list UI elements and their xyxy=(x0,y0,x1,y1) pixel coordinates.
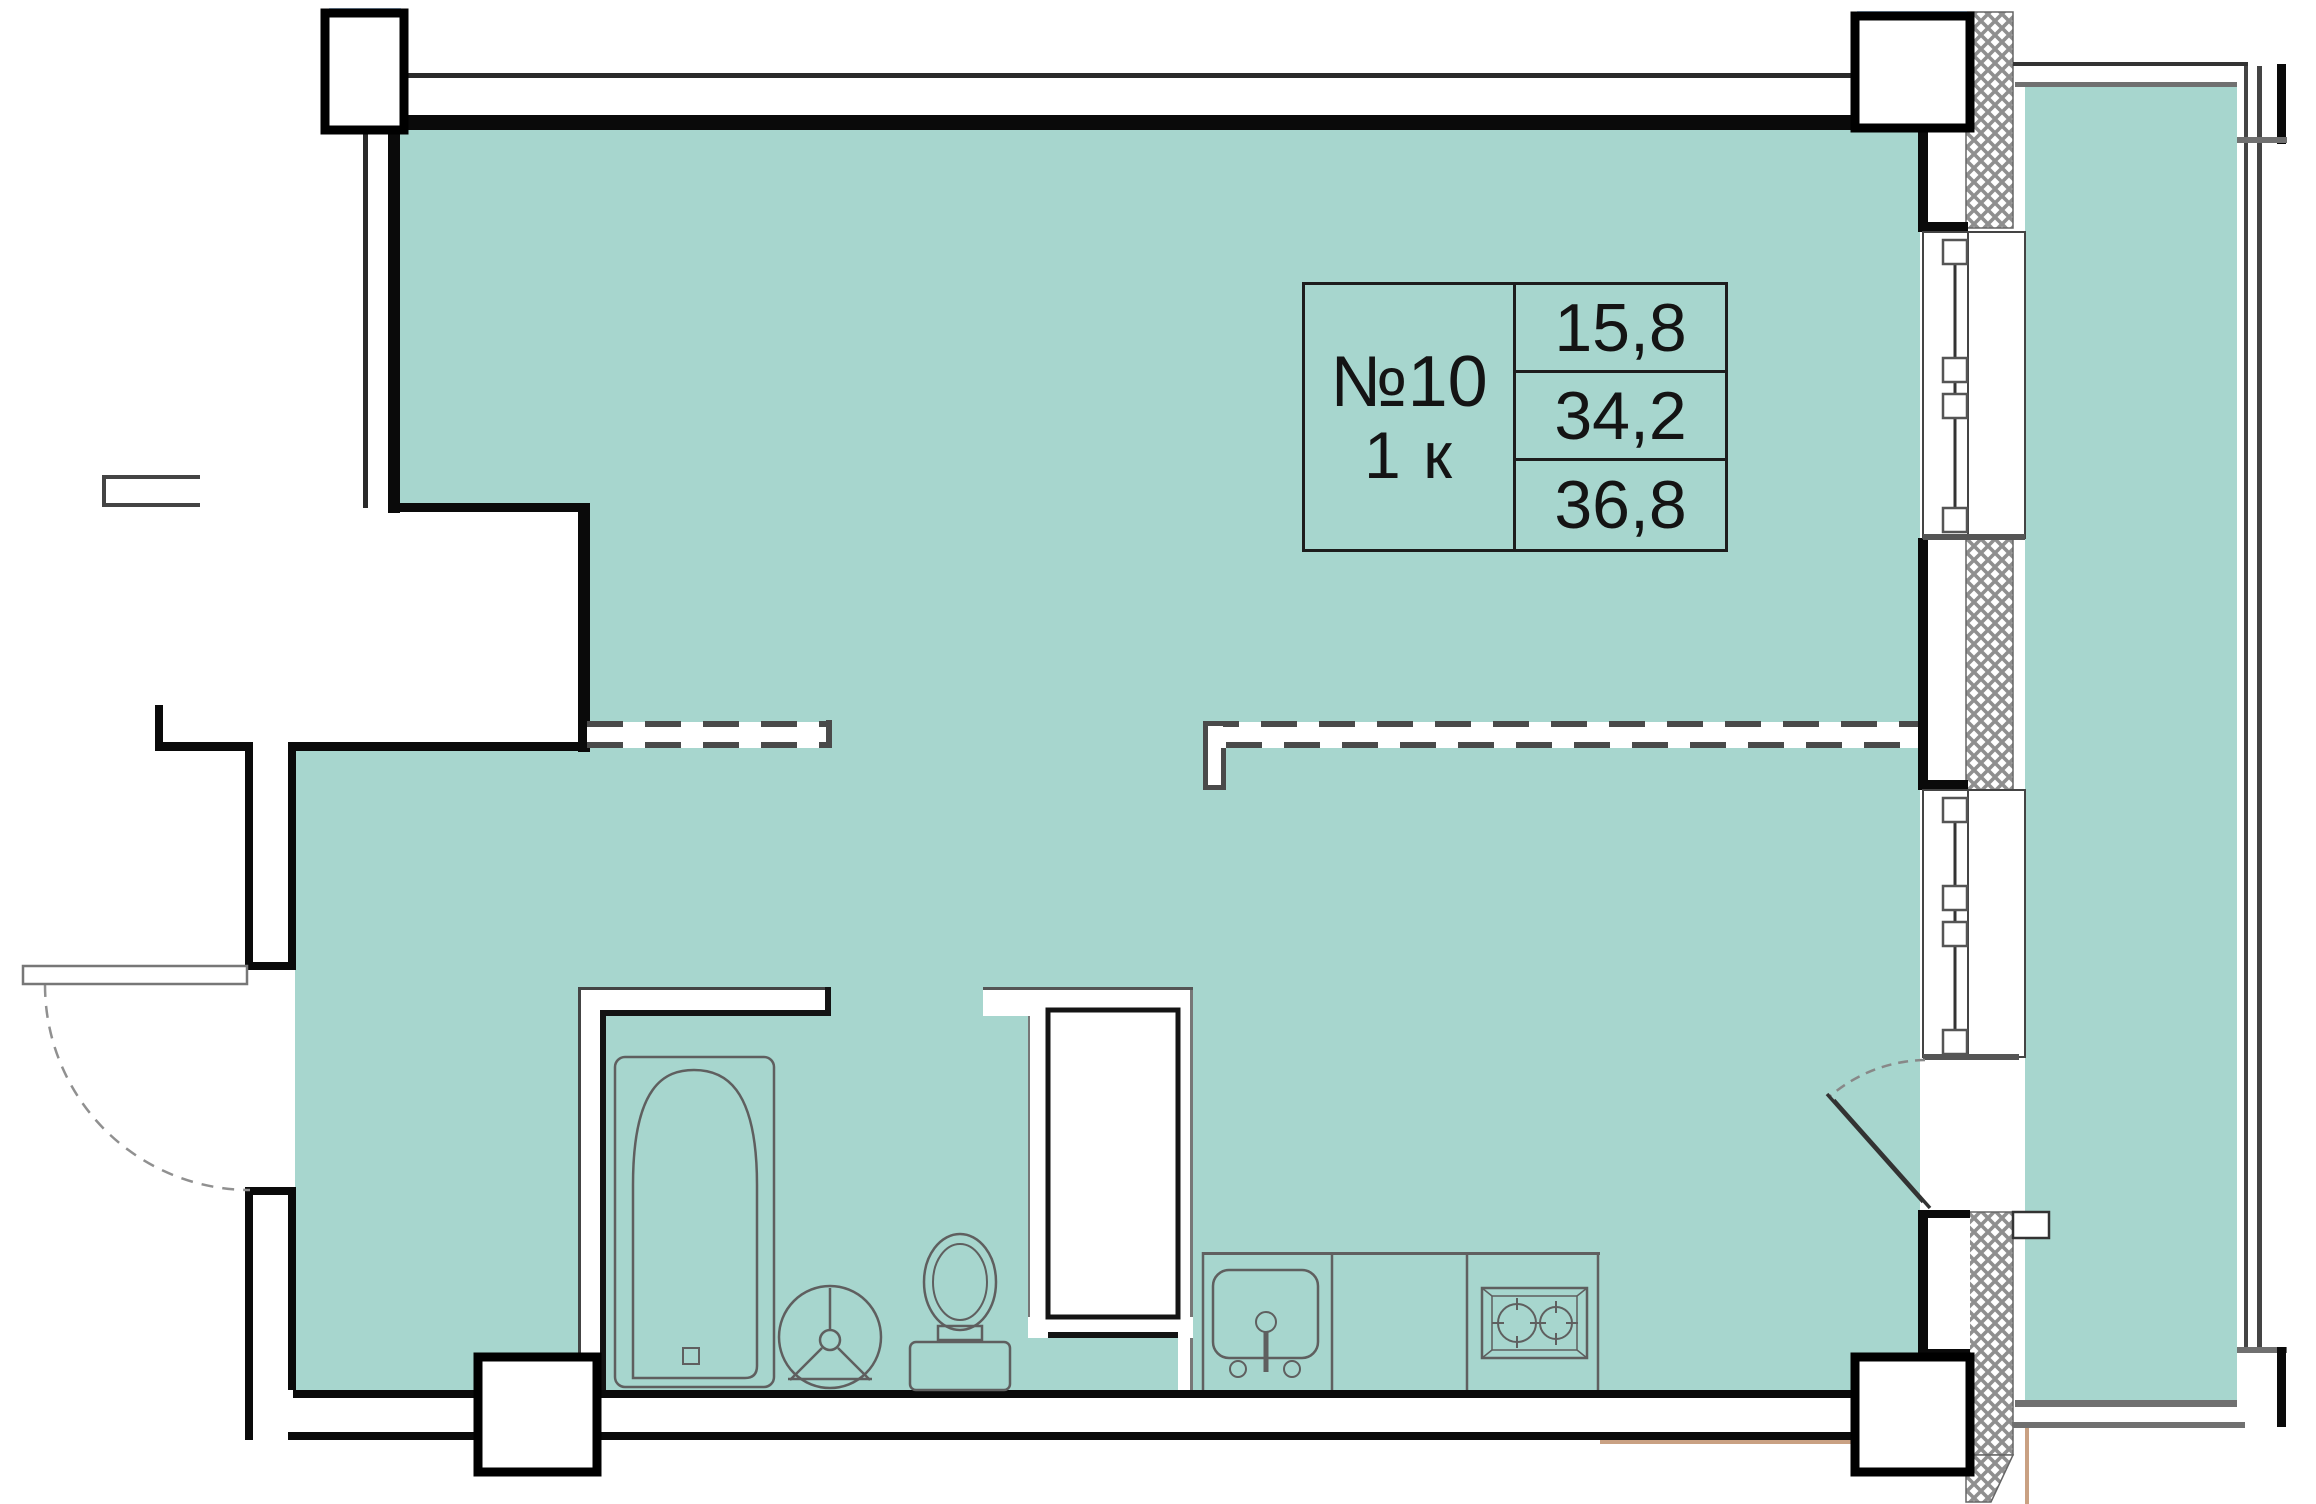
column-top-right xyxy=(1855,16,1970,128)
column-top-left xyxy=(325,13,404,130)
unit-id-cell: №10 1 к xyxy=(1305,285,1516,549)
area-apartment: 34,2 xyxy=(1516,373,1725,461)
floor-plan-canvas xyxy=(0,0,2316,1504)
entry-nook-walls xyxy=(155,705,588,751)
column-bottom-left xyxy=(478,1357,597,1472)
entry-door xyxy=(23,966,250,1190)
unit-info-box: №10 1 к 15,8 34,2 36,8 xyxy=(1302,282,1728,552)
dashed-partition-left xyxy=(587,720,832,748)
unit-rooms: 1 к xyxy=(1364,422,1454,488)
area-total: 36,8 xyxy=(1516,461,1725,549)
unit-number: №10 xyxy=(1330,346,1487,418)
left-wall-lower xyxy=(245,742,296,1440)
entry-door-swing-arc xyxy=(45,985,250,1190)
window-upper xyxy=(1923,232,2025,540)
column-bottom-right xyxy=(1855,1357,1970,1472)
entry-door-leaf xyxy=(23,966,247,984)
top-wall xyxy=(390,73,1920,130)
balcony-floor xyxy=(2025,85,2237,1402)
balcony-door-sill xyxy=(2013,1212,2049,1238)
area-living: 15,8 xyxy=(1516,285,1725,373)
neighbour-wall-stubs xyxy=(102,475,200,507)
window-lower xyxy=(1923,790,2025,1060)
floor-plan-page: №10 1 к 15,8 34,2 36,8 xyxy=(0,0,2316,1504)
